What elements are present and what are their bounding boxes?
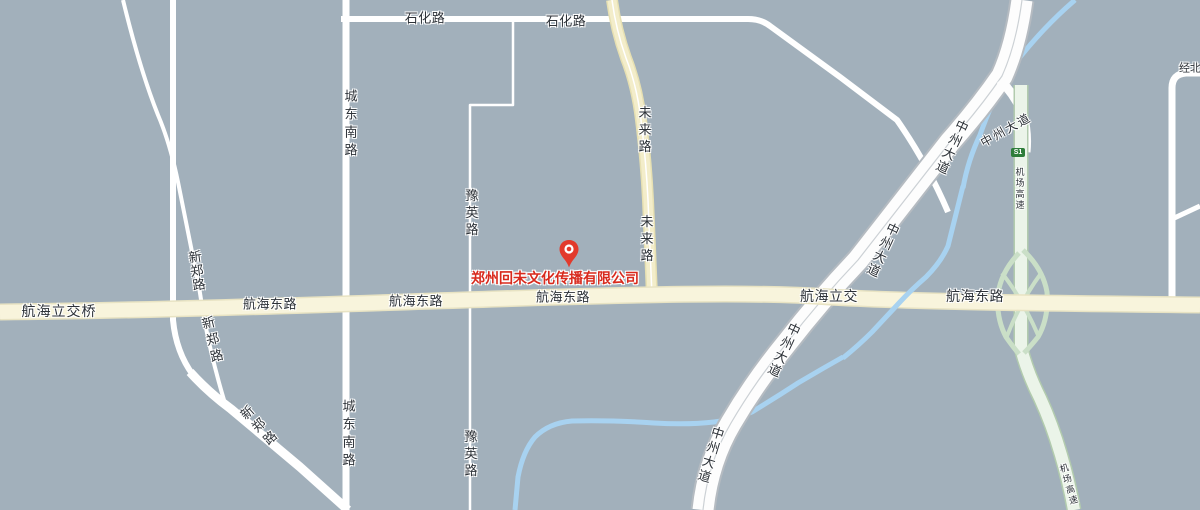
- label-xinzheng-lu-3: 新郑路: [237, 404, 281, 451]
- location-marker-icon[interactable]: [558, 239, 580, 269]
- label-xinzheng-lu-2: 新郑路: [200, 315, 225, 368]
- label-weilai-lu-2: 未来路: [640, 215, 653, 266]
- label-zhongzhou-dadao-branch: 中州大道: [979, 111, 1034, 149]
- label-shihua-lu-1: 石化路: [405, 12, 446, 25]
- label-weilai-lu-1: 未来路: [638, 106, 651, 157]
- label-yuying-lu-2: 豫英路: [464, 430, 477, 481]
- map-canvas[interactable]: 石化路石化路城东南路城东南路豫英路豫英路未来路未来路新郑路新郑路新郑路航海立交桥…: [0, 0, 1200, 510]
- label-yuying-lu-1: 豫英路: [465, 189, 478, 240]
- label-jichang-gaosu-2: 机场高速: [1058, 463, 1079, 508]
- label-hanghai-lijiaoqiao: 航海立交桥: [22, 304, 97, 318]
- badge-s1: S1: [1011, 148, 1025, 157]
- label-jingbei-road: 经北: [1179, 64, 1200, 75]
- label-hanghai-lijiao: 航海立交: [800, 289, 858, 303]
- label-zhongzhou-dadao-4: 中州大道: [695, 424, 725, 485]
- label-zhongzhou-dadao-1: 中州大道: [932, 117, 969, 177]
- label-shihua-lu-2: 石化路: [546, 15, 587, 28]
- label-hanghai-donglu-4: 航海东路: [946, 289, 1004, 303]
- label-chengdongnan-lu-1: 城东南路: [344, 89, 357, 161]
- label-xinzheng-lu-1: 新郑路: [187, 249, 206, 292]
- company-label[interactable]: 郑州回未文化传播有限公司: [471, 271, 639, 285]
- label-jichang-gaosu-1: 机场高速: [1015, 167, 1024, 211]
- label-hanghai-donglu-1: 航海东路: [243, 298, 297, 311]
- label-hanghai-donglu-3: 航海东路: [536, 291, 590, 304]
- map-labels-layer: 石化路石化路城东南路城东南路豫英路豫英路未来路未来路新郑路新郑路新郑路航海立交桥…: [0, 0, 1200, 510]
- label-hanghai-donglu-2: 航海东路: [389, 295, 443, 308]
- label-chengdongnan-lu-2: 城东南路: [342, 399, 355, 471]
- label-zhongzhou-dadao-3: 中州大道: [764, 320, 801, 380]
- label-zhongzhou-dadao-2: 中州大道: [863, 220, 900, 280]
